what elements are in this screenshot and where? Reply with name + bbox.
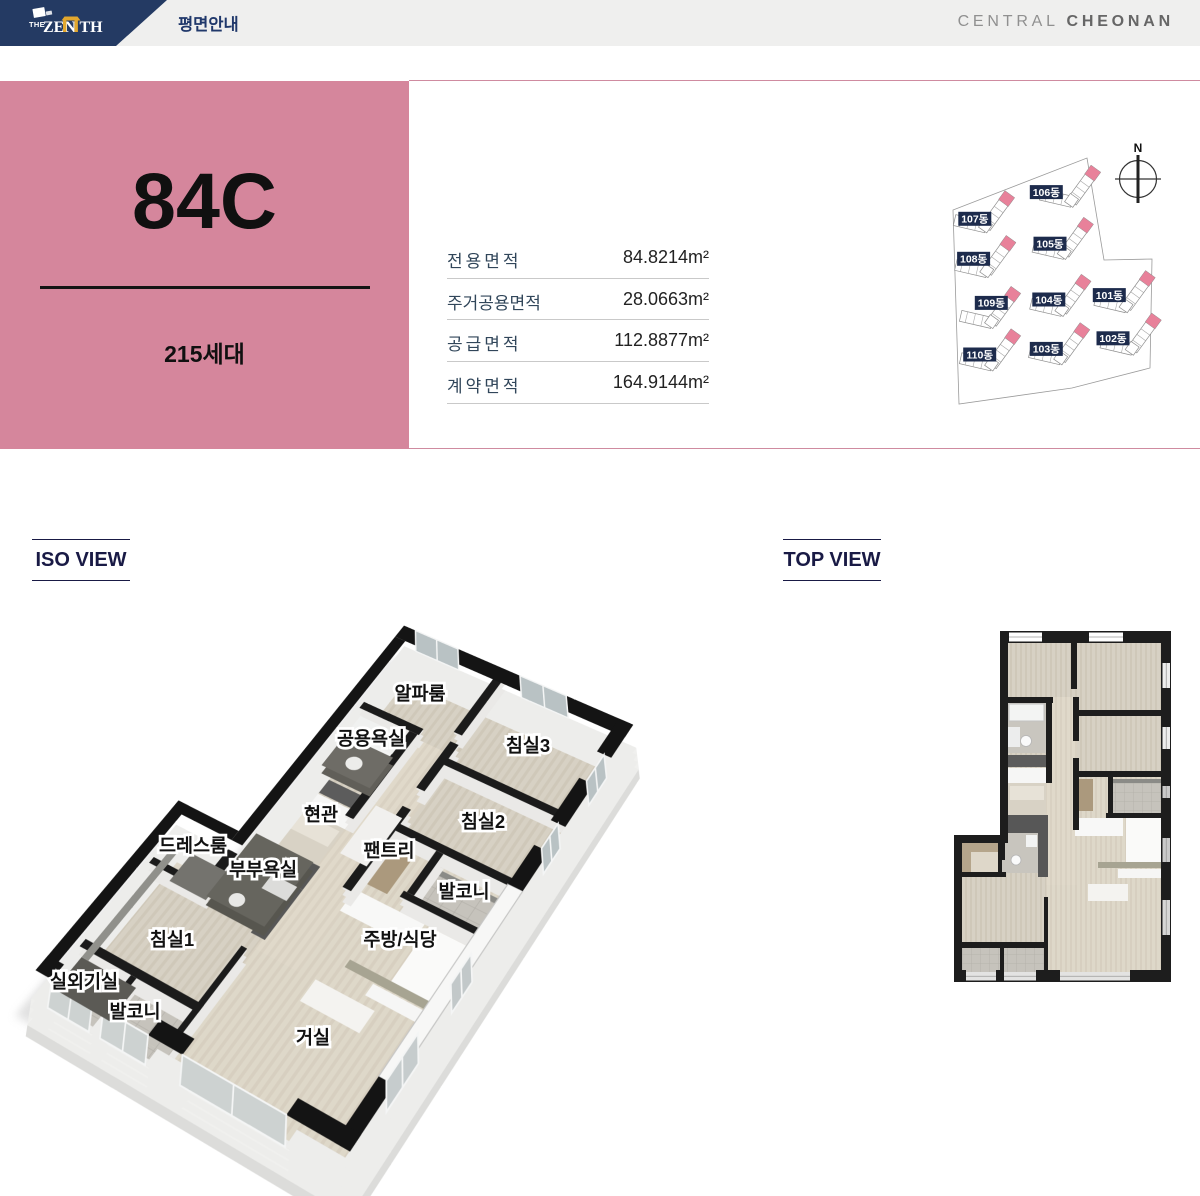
svg-text:발코니: 발코니 — [438, 881, 489, 902]
svg-text:103동: 103동 — [1033, 344, 1061, 356]
svg-text:드레스룸: 드레스룸 — [159, 835, 227, 856]
svg-text:발코니: 발코니 — [109, 1001, 160, 1022]
svg-text:실외기실: 실외기실 — [50, 971, 118, 992]
svg-text:107동: 107동 — [961, 214, 989, 226]
svg-text:침실3: 침실3 — [506, 735, 550, 756]
svg-text:104동: 104동 — [1035, 294, 1063, 306]
svg-text:110동: 110동 — [966, 349, 993, 361]
svg-text:N: N — [1134, 141, 1143, 155]
svg-text:101동: 101동 — [1096, 290, 1124, 302]
svg-text:침실2: 침실2 — [461, 811, 505, 832]
svg-text:알파룸: 알파룸 — [394, 683, 445, 704]
svg-text:공용욕실: 공용욕실 — [337, 728, 405, 749]
svg-text:105동: 105동 — [1036, 239, 1064, 251]
svg-text:108동: 108동 — [960, 254, 988, 266]
svg-text:팬트리: 팬트리 — [363, 840, 414, 861]
svg-text:106동: 106동 — [1033, 187, 1061, 199]
svg-text:주방/식당: 주방/식당 — [363, 929, 436, 950]
svg-text:부부욕실: 부부욕실 — [229, 859, 297, 880]
svg-text:침실1: 침실1 — [150, 929, 194, 950]
svg-text:109동: 109동 — [978, 298, 1006, 310]
svg-text:102동: 102동 — [1099, 333, 1127, 345]
svg-text:거실: 거실 — [296, 1027, 330, 1048]
svg-text:현관: 현관 — [304, 804, 338, 825]
